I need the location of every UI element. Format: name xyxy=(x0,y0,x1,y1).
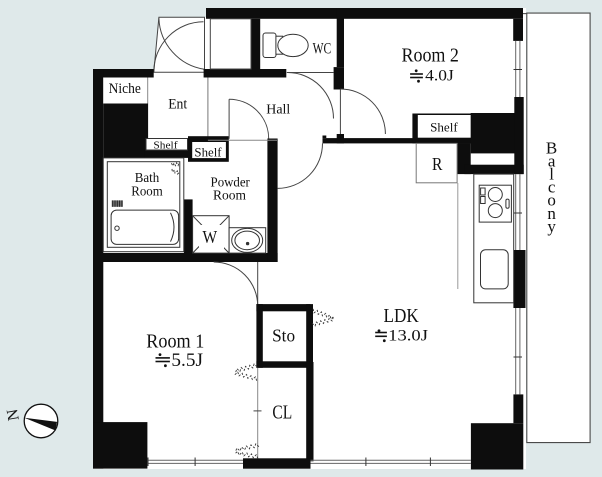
svg-text:4.0J: 4.0J xyxy=(425,66,454,84)
svg-text:Shelf: Shelf xyxy=(430,120,458,134)
svg-text:CL: CL xyxy=(272,402,292,423)
svg-text:Hall: Hall xyxy=(266,102,290,117)
svg-text:13.0J: 13.0J xyxy=(388,328,428,345)
svg-text:Sto: Sto xyxy=(272,326,295,346)
svg-text:Room: Room xyxy=(213,187,247,202)
svg-text:Room: Room xyxy=(131,183,163,198)
svg-text:N: N xyxy=(4,407,23,422)
svg-text:Room 2: Room 2 xyxy=(401,45,459,67)
svg-text:Shelf: Shelf xyxy=(153,139,177,151)
svg-text:Ent: Ent xyxy=(168,97,187,113)
svg-text:Niche: Niche xyxy=(109,81,142,97)
svg-text:WC: WC xyxy=(313,41,332,58)
svg-text:LDK: LDK xyxy=(384,305,420,327)
svg-text:W: W xyxy=(203,227,218,247)
svg-text:Shelf: Shelf xyxy=(194,146,222,160)
svg-text:5.5J: 5.5J xyxy=(171,350,203,371)
svg-text:R: R xyxy=(432,154,443,174)
svg-text:y: y xyxy=(547,217,556,236)
